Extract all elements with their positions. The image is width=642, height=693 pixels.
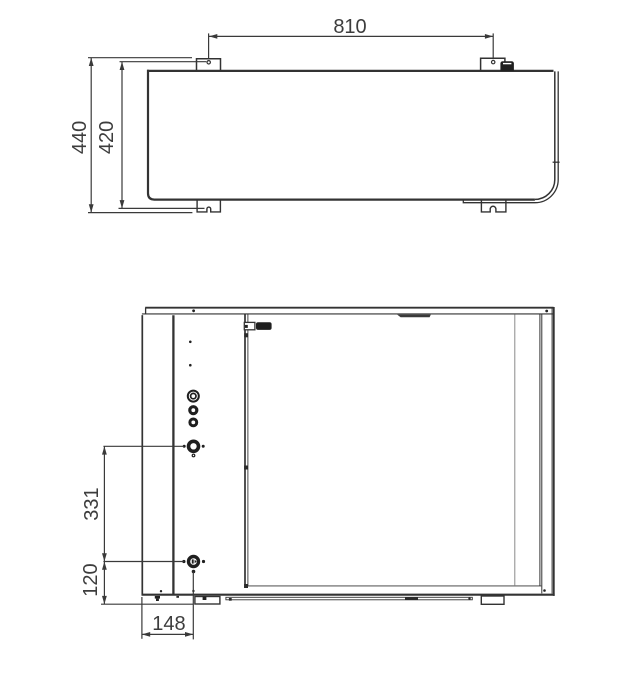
svg-text:120: 120 bbox=[80, 563, 102, 596]
svg-text:810: 810 bbox=[333, 16, 366, 38]
svg-text:420: 420 bbox=[96, 121, 118, 154]
svg-text:331: 331 bbox=[81, 487, 103, 520]
svg-text:440: 440 bbox=[69, 121, 91, 154]
svg-text:148: 148 bbox=[152, 613, 185, 635]
